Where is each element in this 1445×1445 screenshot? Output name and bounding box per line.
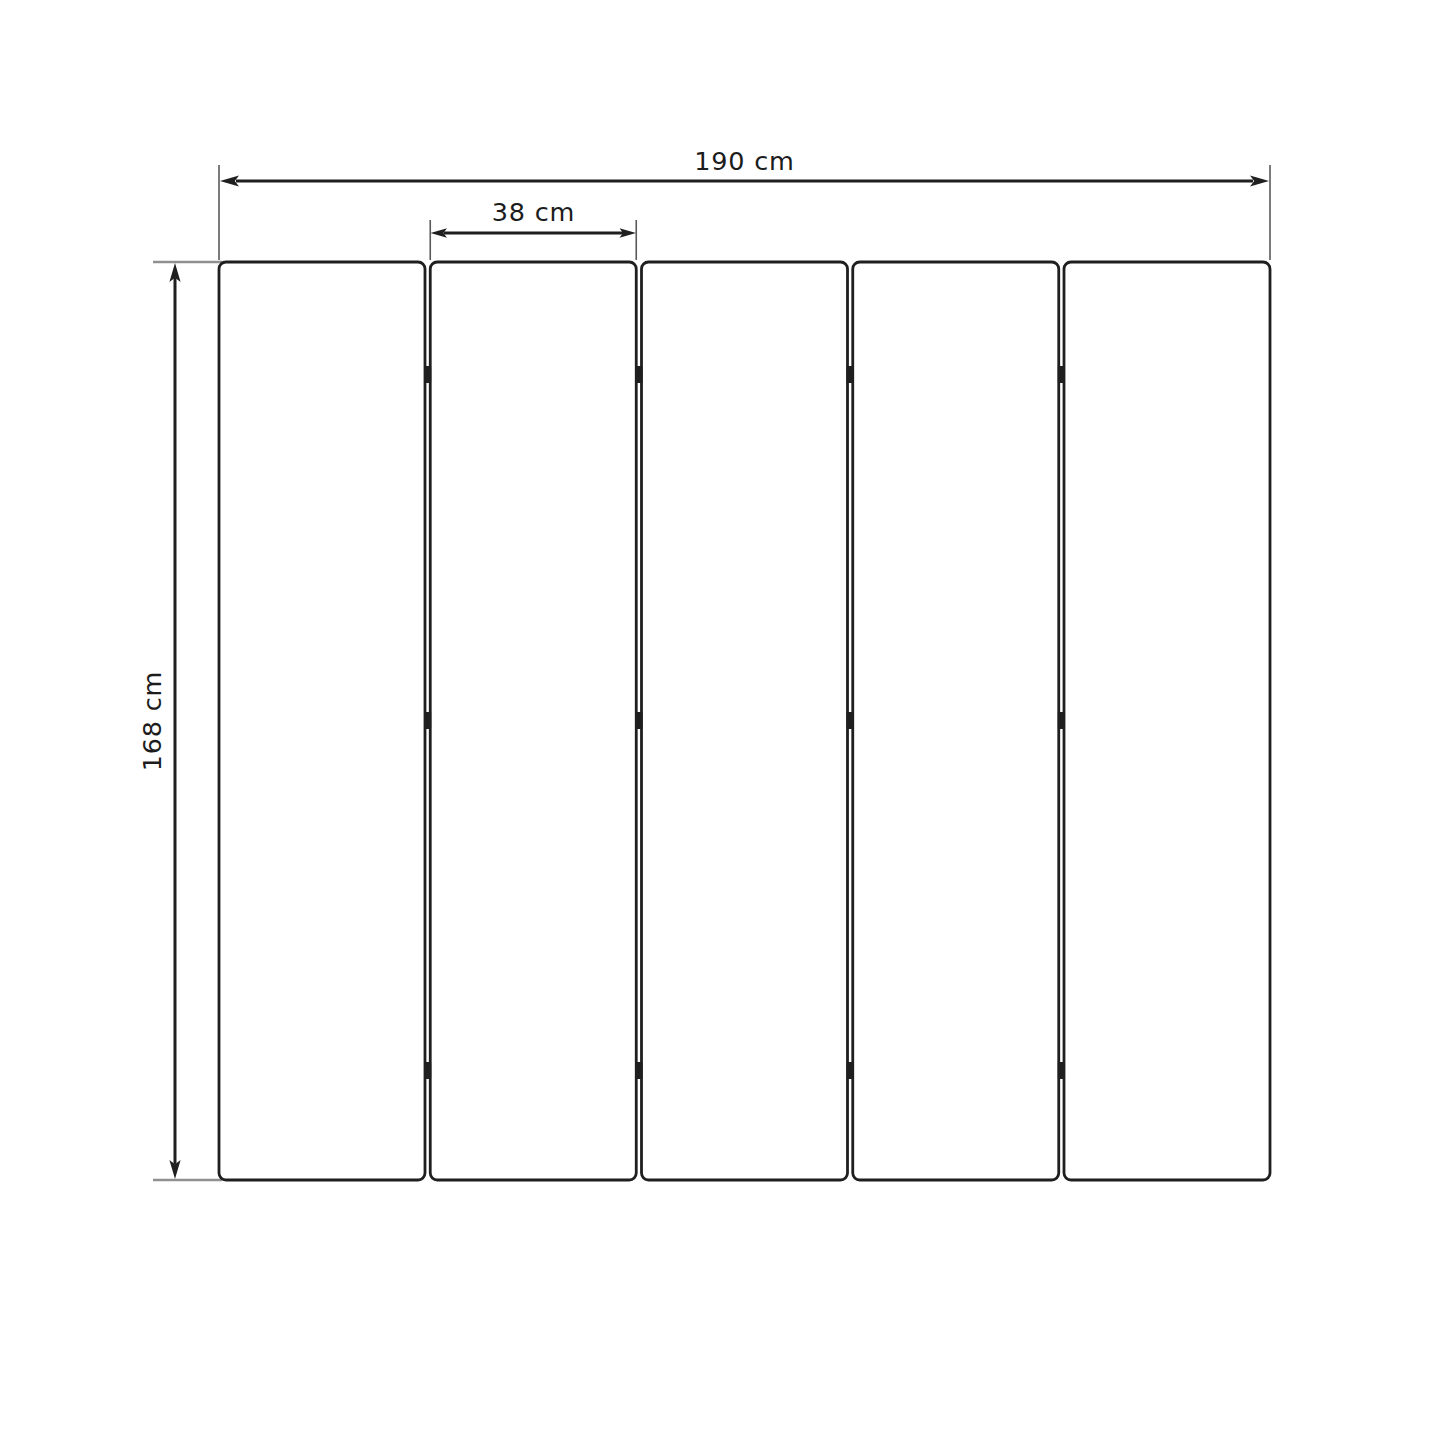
diagram-canvas: 190 cm 38 cm 168 cm bbox=[0, 0, 1445, 1445]
hinge-mark-gap2-row3 bbox=[635, 1062, 642, 1079]
dimension-diagram: 190 cm 38 cm 168 cm bbox=[0, 0, 1445, 1445]
hinge-mark-gap4-row1 bbox=[1058, 366, 1065, 383]
panel-3 bbox=[642, 262, 848, 1180]
total-width-label: 190 cm bbox=[694, 146, 794, 176]
panel-2 bbox=[430, 262, 636, 1180]
panel-4 bbox=[853, 262, 1059, 1180]
hinge-mark-gap3-row3 bbox=[847, 1062, 854, 1079]
hinge-mark-gap4-row2 bbox=[1058, 712, 1065, 729]
hinge-mark-gap3-row1 bbox=[847, 366, 854, 383]
height-dimension: 168 cm bbox=[137, 263, 181, 1179]
hinge-mark-gap1-row1 bbox=[424, 366, 431, 383]
panel-width-dimension: 38 cm bbox=[431, 197, 637, 238]
panel-group bbox=[219, 262, 1270, 1180]
hinge-mark-gap1-row2 bbox=[424, 712, 431, 729]
height-label: 168 cm bbox=[137, 671, 167, 771]
width-extension-lines bbox=[219, 165, 1270, 260]
panel-1 bbox=[219, 262, 425, 1180]
hinge-mark-gap4-row3 bbox=[1058, 1062, 1065, 1079]
hinge-mark-gap1-row3 bbox=[424, 1062, 431, 1079]
panel-width-label: 38 cm bbox=[492, 197, 575, 227]
panel-5 bbox=[1064, 262, 1270, 1180]
hinge-mark-gap3-row2 bbox=[847, 712, 854, 729]
hinge-mark-gap2-row1 bbox=[635, 366, 642, 383]
hinge-mark-gap2-row2 bbox=[635, 712, 642, 729]
total-width-dimension: 190 cm bbox=[220, 146, 1269, 187]
